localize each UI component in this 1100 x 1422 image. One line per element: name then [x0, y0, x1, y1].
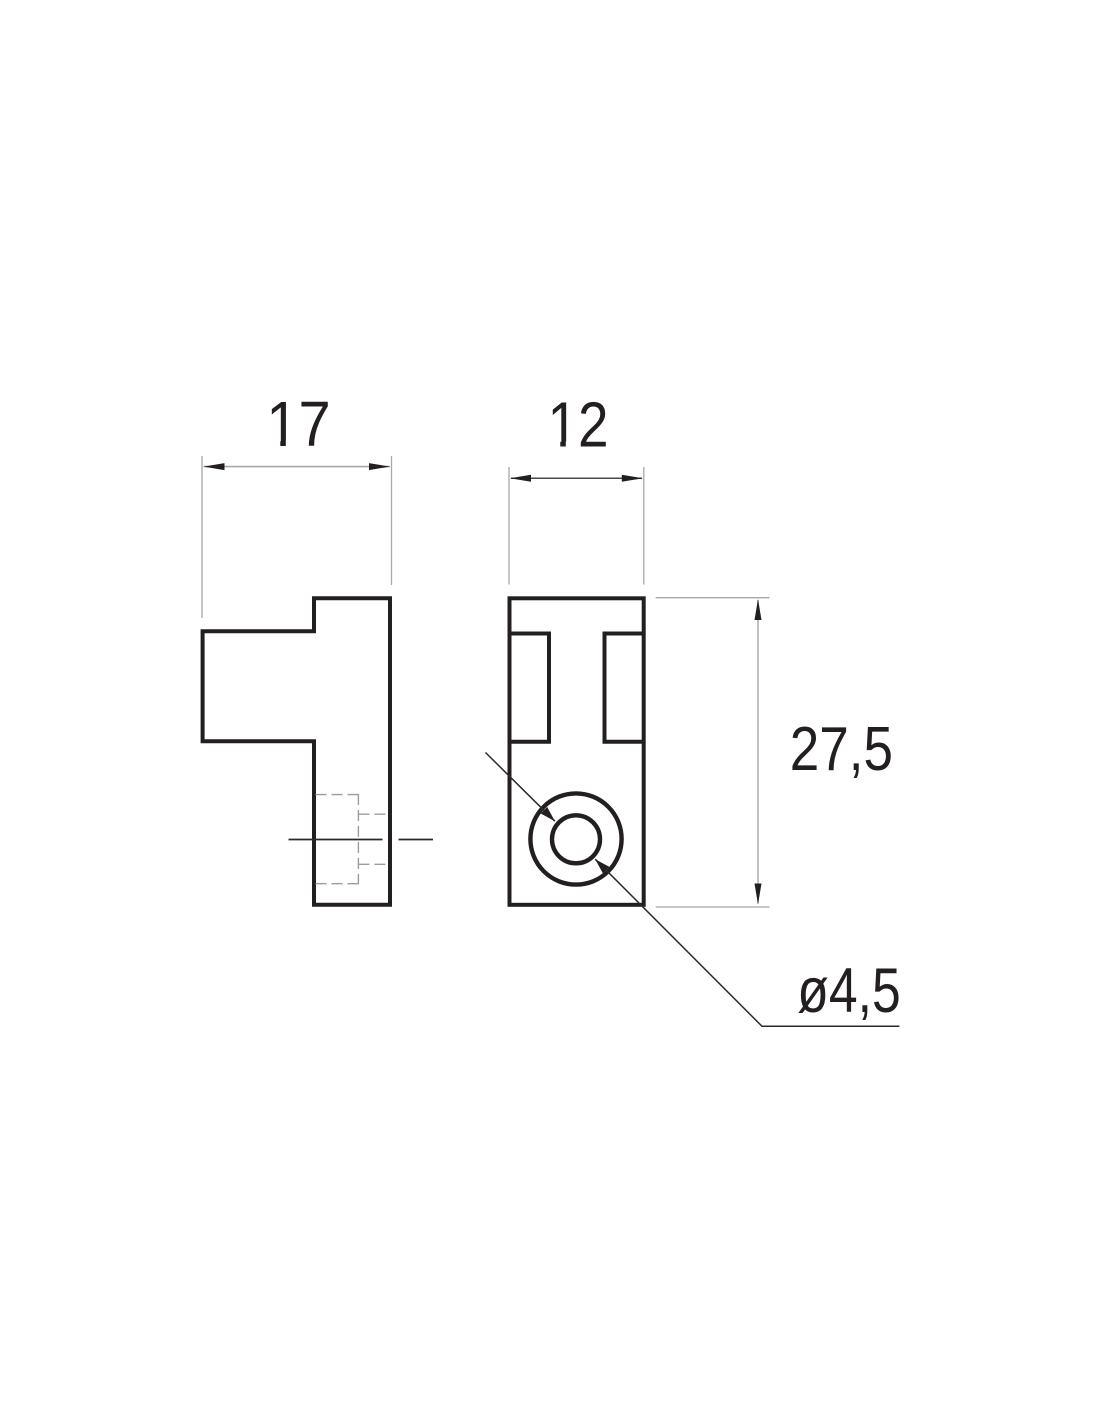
svg-text:27,5: 27,5	[790, 715, 893, 784]
svg-text:ø4,5: ø4,5	[797, 956, 900, 1026]
svg-text:17: 17	[266, 388, 330, 460]
svg-text:12: 12	[547, 389, 608, 461]
